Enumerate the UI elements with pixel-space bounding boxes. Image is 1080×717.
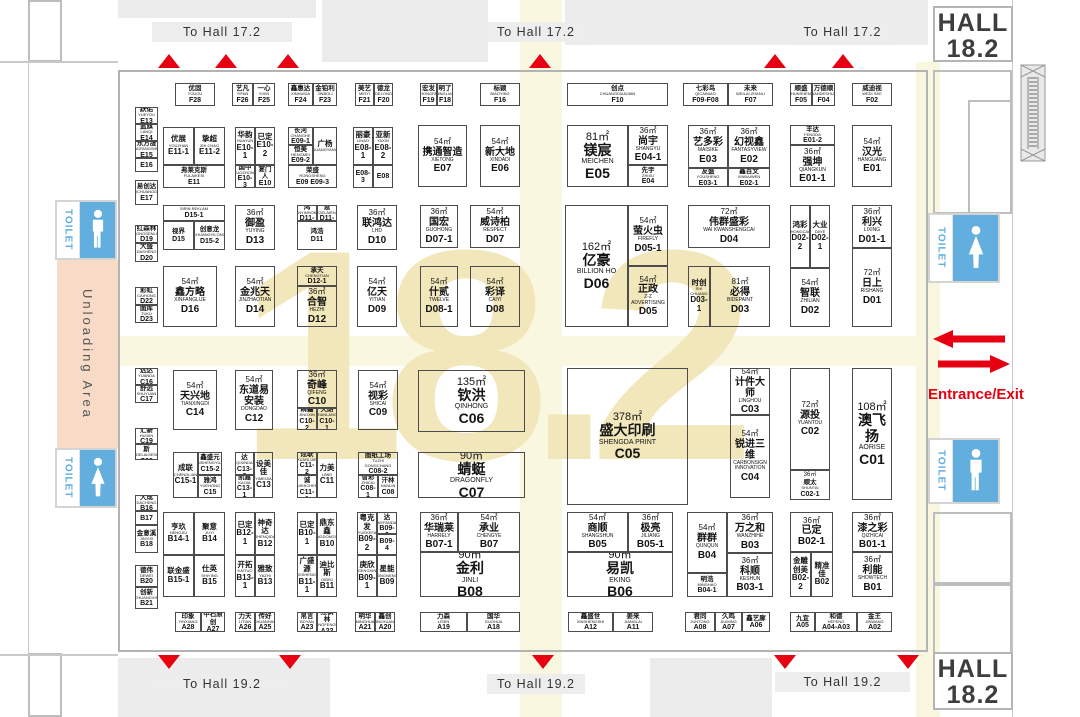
booth-F21: 美艺MEIYIF21 bbox=[355, 83, 374, 106]
booth-C13-2: 齐芯达QIXINDAC13-2 bbox=[235, 452, 254, 475]
booth-C09: 54㎡视彩SHICAIC09 bbox=[358, 370, 398, 430]
booth-A11: 姜来JIANGLAIA11 bbox=[613, 612, 653, 632]
to-hall-19-2-sign: To Hall 19.2 bbox=[487, 674, 585, 694]
booth-F25: 一心YIXINF25 bbox=[253, 83, 275, 106]
toilet-label: TOILET bbox=[930, 215, 953, 281]
booth-D07: 54㎡威诗柏RESPECTD07 bbox=[470, 205, 520, 248]
toilet-label: TOILET bbox=[930, 440, 953, 502]
booth-E01-2: 丰达FENGDAE01-2 bbox=[790, 125, 835, 145]
toilet-male-right: TOILET bbox=[928, 438, 1000, 504]
booth-D20: 大盛DASHENGD20 bbox=[135, 243, 158, 262]
booth-F18: 明了MINGLIAOF18 bbox=[437, 83, 453, 106]
booth-C14: 54㎡天兴地TIANXINGDIC14 bbox=[173, 370, 217, 430]
booth-D15-2: 创意龙CHUANGYILONGD15-2 bbox=[194, 221, 225, 250]
booth-F02: 威迪视WEDI SEEF02 bbox=[852, 83, 892, 106]
booth-B09-2: 粤克发YUEKEFAB09-2 bbox=[357, 512, 377, 555]
entrance-triangle-icon bbox=[897, 655, 919, 669]
booth-B12: 神奇达SHENQIDAB12 bbox=[255, 512, 275, 555]
entrance-arrow-icon bbox=[938, 355, 1010, 373]
entrance-triangle-icon bbox=[529, 54, 551, 68]
booth-C01: 108㎡澳飞扬AORISEC01 bbox=[852, 368, 892, 500]
booth-E05: 81㎡镁宸MEICHENE05 bbox=[567, 125, 628, 187]
unloading-area: Unloading Area bbox=[57, 260, 118, 448]
toilet-label: TOILET bbox=[57, 202, 80, 258]
booth-C19: 汇新HUIXINC19 bbox=[135, 428, 158, 444]
booth-B17: B17 bbox=[135, 511, 158, 525]
entrance-exit-label: Entrance/Exit bbox=[928, 386, 1063, 403]
booth-C12: 54㎡东道易安装DONGDAOC12 bbox=[235, 370, 273, 430]
booth-B04: 54㎡群群QUNQUNB04 bbox=[687, 512, 727, 573]
booth-F04: 万德顺WANDESHUNF04 bbox=[812, 83, 835, 106]
booth-B11: 迪比斯DIBISIB11 bbox=[317, 555, 337, 597]
booth-C02-1: 36㎡顺太SHUNTAIC02-1 bbox=[790, 470, 830, 500]
booth-B06: 90㎡易凯EKINGB06 bbox=[567, 552, 673, 597]
booth-E09-E09-3: 荣盛RONGSHENGE09 E09-3 bbox=[288, 165, 337, 188]
booth-D10: 36㎡联鸿达LHDD10 bbox=[357, 205, 397, 250]
entrance-triangle-icon bbox=[158, 655, 180, 669]
booth-A04-A03: 和德HEFENGA04-A03 bbox=[815, 612, 857, 632]
booth-D07-1: 36㎡国宏GUOHONGD07-1 bbox=[420, 205, 458, 248]
booth-D19: 红森林HONGSENLIND19 bbox=[135, 225, 158, 243]
booth-D12: 36㎡合智HEZHID12 bbox=[297, 286, 337, 327]
booth-F26: 艺凡YIFANF26 bbox=[232, 83, 253, 106]
booth-E08: E08 bbox=[373, 165, 393, 188]
booth-C10-1: 天朗TIANLANGC10-1 bbox=[317, 408, 337, 430]
to-hall-17-2-sign: To Hall 17.2 bbox=[795, 22, 890, 42]
booth-A07: 久鸣JIUMINGA07 bbox=[715, 612, 742, 632]
booth-D06: 162㎡亿豪BILLION HOD06 bbox=[565, 205, 628, 327]
female-toilet-icon bbox=[80, 450, 115, 506]
booth-A27: 中石原创A27 bbox=[201, 612, 225, 632]
booth-C06: 135㎡钦洪QINHONGC06 bbox=[418, 370, 525, 432]
entrance-triangle-icon bbox=[277, 54, 299, 68]
booth-E01-1: 36㎡强坤QIANGKUNE01-1 bbox=[790, 145, 835, 187]
hall-badge-bottom: HALL 18.2 bbox=[933, 652, 1013, 710]
booth-B01-1: 36㎡漆之彩QIZHICAIB01-1 bbox=[852, 512, 893, 552]
booth-D01-1: 36㎡利兴LIXINGD01-1 bbox=[852, 205, 892, 248]
booth-广杨: 广杨GUANGYANG bbox=[313, 127, 337, 165]
booth-B07-1: 36㎡华瑞莱HARRELYB07-1 bbox=[420, 512, 458, 552]
booth-D02-1: 大业DAYED02-1 bbox=[810, 205, 830, 268]
booth-B21: 创新CHUANGXINB21 bbox=[135, 587, 158, 609]
booth-B03: 36㎡万之和WANZHIHEB03 bbox=[727, 512, 773, 553]
booth-C13-1: 凯嘉KAIJIAC13-1 bbox=[235, 475, 254, 498]
booth-C02: 72㎡源投YUANTOUC02 bbox=[790, 368, 830, 470]
booth-B14: 聚意JUYIB14 bbox=[194, 512, 225, 555]
booth-E09-1: 长河CHANGHEE09-1 bbox=[288, 127, 313, 145]
booth-B13: 雅致YAZHIB13 bbox=[255, 555, 275, 597]
booth-B07: 54㎡承业CHENGYEB07 bbox=[458, 512, 520, 552]
booth-D03: 81㎡必得BIDEPAINTD03 bbox=[710, 266, 770, 327]
booth-E04: 先宇ZHIXUE04 bbox=[628, 165, 668, 187]
booth-A22: 红枫林HONGFENGLINA22 bbox=[317, 612, 337, 632]
booth-B09: 星能XINGNENGB09 bbox=[377, 555, 397, 597]
booth-A23: 帛言BOYANA23 bbox=[297, 612, 317, 632]
booth-D11: 鸿浩D11 bbox=[297, 221, 337, 250]
booth-A20: 鑫创XINCHUANGA20 bbox=[375, 612, 395, 632]
booth-E10-3: 国中GUOZHONGE10-3 bbox=[235, 165, 255, 188]
booth-B02-1: 36㎡已定B02-1 bbox=[790, 512, 833, 552]
booth-A05: 九宜A05 bbox=[790, 612, 815, 632]
to-hall-19-2-sign: To Hall 19.2 bbox=[152, 674, 292, 694]
booth-C15: 雅鸿YUEHONGC15 bbox=[198, 475, 222, 498]
booth-E03-1: 友盛YOUSHENGE03-1 bbox=[688, 168, 728, 187]
booth-E14: 蓝旗LANQIE14 bbox=[135, 124, 158, 141]
male-toilet-icon bbox=[80, 202, 115, 258]
booth-F23: 金铂利JINBOLIF23 bbox=[313, 83, 337, 106]
toilet-female-right: TOILET bbox=[928, 213, 1000, 283]
booth-E09-2: 恒美HENGMEIE09-2 bbox=[288, 145, 313, 165]
male-toilet-icon bbox=[953, 440, 998, 502]
toilet-female-left: TOILET bbox=[55, 448, 117, 508]
booth-D14: 54㎡金兆天JINZHAOTIAND14 bbox=[235, 266, 275, 327]
booth-C08: 汗林HANLINC08 bbox=[378, 475, 398, 498]
entrance-triangle-icon bbox=[158, 54, 180, 68]
booth-A06: 鑫艺廊A06 bbox=[742, 612, 770, 632]
booth-D16: 54㎡鑫方略XINFANGLUED16 bbox=[163, 266, 217, 327]
booth-C20: 德莱杰斯DELAIJIESIC20 bbox=[135, 444, 158, 460]
booth-B02: 精准佳B02 bbox=[811, 552, 833, 597]
booth-C05: 378㎡盛大印刷SHENGDA PRINTC05 bbox=[567, 368, 688, 505]
booth-A25: 传好CHUANHAOA25 bbox=[255, 612, 275, 632]
booth-E07: 54㎡携通智造XIETONGE07 bbox=[418, 125, 467, 187]
entrance-triangle-icon bbox=[215, 54, 237, 68]
booth-F28: 优固YOUGUF28 bbox=[175, 83, 215, 106]
booth-A21: 明华MINGHUAA21 bbox=[355, 612, 375, 632]
booth-D02: 54㎡智联ZHILIAND02 bbox=[790, 268, 830, 327]
booth-F09-F08: 七彩鸟QICAINIAOF09-F08 bbox=[683, 83, 728, 106]
booth-D02-2: 鸿彩HONGCAID02-2 bbox=[790, 205, 810, 268]
booth-B09-3: 科凡达KEFANDAB09-3 bbox=[377, 512, 397, 534]
booth-A19: 力森LISENA19 bbox=[420, 612, 467, 632]
exit-arrow-icon bbox=[933, 330, 1005, 348]
hall-badge-top: HALL 18.2 bbox=[933, 6, 1013, 62]
booth-E08-1: 丽豪LIHAOE08-1 bbox=[353, 127, 373, 165]
hall-badge-line1: HALL bbox=[935, 10, 1011, 36]
booth-D11-2: 鑫银鸿XINYINHONGD11-2 bbox=[297, 205, 317, 221]
booth-C03: 54㎡计件大师LINGHOUC03 bbox=[730, 368, 770, 415]
booth-E08-2: 亚新YAXINE08-2 bbox=[373, 127, 393, 165]
booth-A08: 君同JUNTONGA08 bbox=[685, 612, 715, 632]
booth-B15-1: 联金盛B15-1 bbox=[163, 555, 194, 597]
booth-D13: 36㎡御盈YUYINGD13 bbox=[235, 205, 275, 250]
booth-D05: 54㎡正政Z-Z ADVERTISINGD05 bbox=[628, 266, 668, 327]
toilet-male-left: TOILET bbox=[55, 200, 117, 260]
booth-D04: 72㎡伟群盛彩WAI KWANSHENGCAID04 bbox=[688, 205, 770, 248]
female-toilet-icon bbox=[953, 215, 998, 281]
hall-badge-line2: 18.2 bbox=[935, 36, 1011, 62]
booth-C08-2: 图纸工场TUZHI GONGCHANGC08-2 bbox=[358, 452, 398, 475]
booth-D03-1: 时创SHI CHUANGD03-1 bbox=[688, 266, 710, 327]
toilet-label: TOILET bbox=[57, 450, 80, 506]
booth-D09: 54㎡亿天YITIAND09 bbox=[357, 266, 397, 327]
unloading-area-label: Unloading Area bbox=[80, 289, 95, 420]
booth-F16: 标颖BIAOYINGF16 bbox=[480, 83, 520, 106]
booth-B04-1: 明浩MINGHAOB04-1 bbox=[687, 573, 727, 597]
booth-D15-1: SIRIN REKLAMD15-1 bbox=[163, 205, 225, 221]
booth-D05-1: 54㎡萤火虫FIREFLYD05-1 bbox=[628, 205, 668, 266]
booth-F10: 创点CHUANGDIANJIANF10 bbox=[567, 83, 668, 106]
to-hall-17-2-sign: To Hall 17.2 bbox=[487, 22, 585, 42]
booth-E10: 宴门人E10 bbox=[255, 165, 275, 188]
booth-C11-1: 百事诚BAISHICHENGC11-1 bbox=[297, 475, 317, 498]
booth-E10-1: 华韵HUAYUNE10-1 bbox=[235, 127, 255, 165]
booth-A12: 鑫盛世XINSHENGSHIA12 bbox=[568, 612, 613, 632]
booth-C15-1: 成联CHENGLIANC15-1 bbox=[173, 452, 198, 498]
booth-B14-1: 亨玖HENGJIUB14-1 bbox=[163, 512, 194, 555]
booth-C04: 54㎡锐进三维CARBONSIGN INNOVATIONC04 bbox=[730, 415, 770, 498]
booth-D11-1: 格莱恩GELAIEND11-1 bbox=[317, 205, 337, 221]
booth-D01: 72㎡日上RISHANGD01 bbox=[852, 248, 892, 327]
booth-D08: 54㎡彩译CAIYID08 bbox=[470, 266, 520, 327]
to-hall-19-2-sign: To Hall 19.2 bbox=[775, 672, 910, 692]
booth-C13: 设美佳YIMEIJIAC13 bbox=[254, 452, 273, 498]
booth-F19: 宏发HONGFAF19 bbox=[420, 83, 437, 106]
booth-A02: 金王JINWANGA02 bbox=[857, 612, 892, 632]
booth-E01: 54㎡汉光HANGUANGE01 bbox=[852, 125, 892, 187]
booth-B09-4: B09-4 bbox=[377, 534, 397, 555]
booth-B18: 金意溪JINYIXIB18 bbox=[135, 525, 158, 553]
to-hall-17-2-sign: To Hall 17.2 bbox=[152, 22, 292, 42]
booth-B11-1: 广盛源GUANGSHENGYUANB11-1 bbox=[297, 555, 317, 597]
booth-B20: 德伟DEWEIB20 bbox=[135, 565, 158, 587]
booth-E11-1: 优展YOUZHANE11-1 bbox=[163, 127, 194, 165]
entrance-triangle-icon bbox=[832, 54, 854, 68]
booth-D12-1: 承天CHENGTIAND12-1 bbox=[297, 266, 337, 286]
booth-E06: 54㎡新大地XINDADIE06 bbox=[480, 125, 520, 187]
booth-E02-1: 鑫百文XINBAIWENE02-1 bbox=[728, 168, 770, 187]
floor-plan: 18.2 优固YOUGUF28艺凡YIFANF26一心YIXINF25鑫惠达XI… bbox=[0, 0, 1080, 717]
booth-area: 优固YOUGUF28艺凡YIFANF26一心YIXINF25鑫惠达XINHUID… bbox=[0, 0, 1080, 717]
entrance-triangle-icon bbox=[774, 655, 796, 669]
booth-E15: 东方晟DONGFANGSHENGE15 bbox=[135, 141, 158, 158]
booth-F24: 鑫惠达XINHUIDAF24 bbox=[288, 83, 313, 106]
booth-C07: 90㎡蜻蜓DRAGONFLYC07 bbox=[418, 452, 525, 498]
booth-A18: 国华GUOHUAA18 bbox=[467, 612, 520, 632]
booth-B10: 鼎东鑫DINGDONGXINB10 bbox=[317, 512, 337, 555]
booth-E13: 跃佑YUEYOUE13 bbox=[135, 107, 158, 124]
booth-E03: 36㎡艺多彩MAISIKEE03 bbox=[688, 125, 728, 168]
entrance-triangle-icon bbox=[279, 655, 301, 669]
booth-B03-1: 36㎡科顺KESHUNB03-1 bbox=[727, 553, 773, 597]
booth-C15-2: 鑫盛元XINSHENGYUANC15-2 bbox=[198, 452, 222, 475]
booth-E16: E16 bbox=[135, 158, 158, 172]
booth-C11-2: 炫联XUANLIANC11-2 bbox=[297, 452, 317, 475]
booth-A28: 印象YINXIANGA28 bbox=[175, 612, 201, 632]
booth-C08-1: 智彩ZHICAIC08-1 bbox=[358, 475, 378, 498]
booth-B16: 大成DACHENGB16 bbox=[135, 495, 158, 511]
booth-B01: 36㎡利能SHOWTECHB01 bbox=[852, 552, 893, 597]
booth-E04-1: 36㎡尚宇SHANGYUE04-1 bbox=[628, 125, 668, 165]
booth-B10-1: 已定B10-1 bbox=[297, 512, 317, 555]
booth-F05: 顺盛SHUNSHENGF05 bbox=[790, 83, 812, 106]
booth-D15: 视界D15 bbox=[163, 221, 194, 250]
booth-C10-2: 精鑫JINGXINC10-2 bbox=[297, 408, 317, 430]
booth-D08-1: 54㎡什贰TWELVED08-1 bbox=[420, 266, 458, 327]
hall-badge-line2: 18.2 bbox=[935, 682, 1011, 708]
escalator-icon bbox=[1020, 64, 1046, 162]
booth-B15: 仕英SHIYINGB15 bbox=[194, 555, 225, 597]
booth-D22: 彩虹CAIHONGD22 bbox=[135, 287, 158, 305]
booth-B08: 90㎡金利JINLIB08 bbox=[420, 552, 520, 597]
booth-E08-3: E08-3 bbox=[353, 165, 373, 188]
booth-B12-1: 已定B12-1 bbox=[235, 512, 255, 555]
booth-B05: 54㎡商顺SHANGSHUNB05 bbox=[567, 512, 628, 552]
hall-badge-line1: HALL bbox=[935, 656, 1011, 682]
booth-C10: 36㎡奇峰QIFENGC10 bbox=[297, 370, 337, 408]
entrance-triangle-icon bbox=[532, 655, 554, 669]
booth-C11: 力美LIMEIC11 bbox=[317, 452, 337, 498]
booth-A26: 力天LITIANA26 bbox=[235, 612, 255, 632]
booth-B05-1: 36㎡极亮JILIANGB05-1 bbox=[628, 512, 673, 552]
entrance-triangle-icon bbox=[764, 54, 786, 68]
booth-C16: 远达YUANDAC16 bbox=[135, 368, 158, 385]
booth-B09-1: 庚欣GENGXINB09-1 bbox=[357, 555, 377, 597]
booth-C17: 舒远SHUYUANC17 bbox=[135, 385, 158, 403]
booth-B13-1: 开拓KAITUOB13-1 bbox=[235, 555, 255, 597]
booth-E11: 弗莱克斯FULAIKESIE11 bbox=[163, 165, 225, 188]
booth-F07: 未来WEILAI ZHANLIF07 bbox=[728, 83, 773, 106]
booth-E11-2: 挚超ZHI CHAOE11-2 bbox=[194, 127, 225, 165]
booth-B02-2: 金雕创美B02-2 bbox=[790, 552, 811, 597]
booth-E17: 易创达YICHUANGDAE17 bbox=[135, 180, 158, 205]
booth-F20: 德龙DELONGF20 bbox=[374, 83, 393, 106]
booth-E10-2: 已定E10-2 bbox=[255, 127, 275, 165]
booth-E02: 36㎡幻视鑫FANTASYVIEWE02 bbox=[728, 125, 770, 168]
booth-D23: 图库TUKUD23 bbox=[135, 305, 158, 323]
